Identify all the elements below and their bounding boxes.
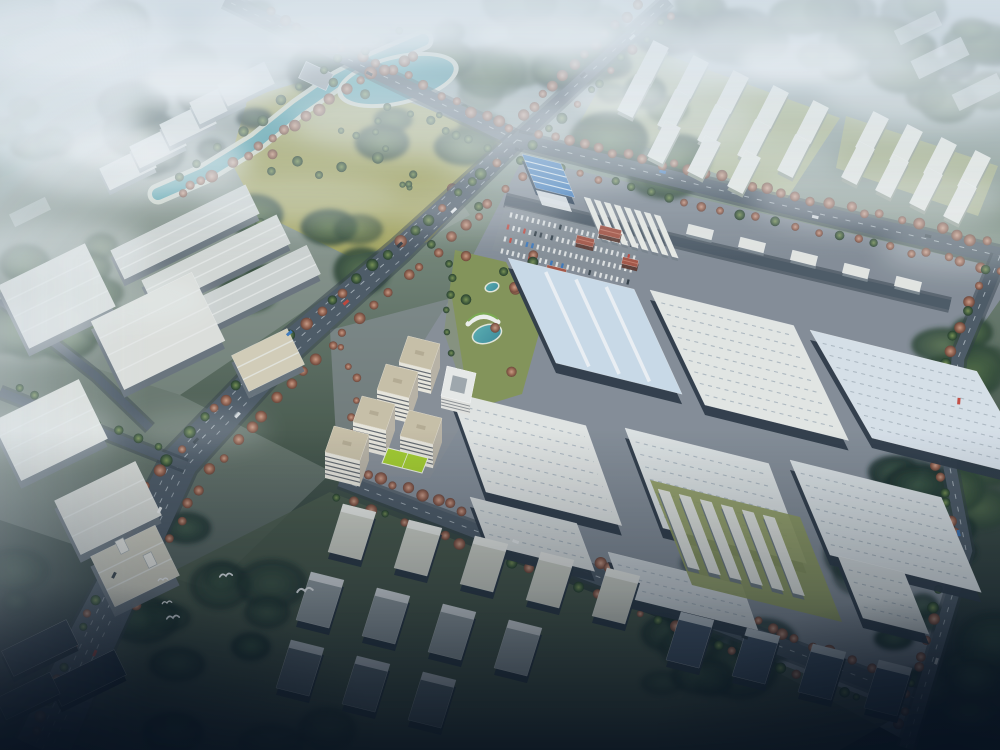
scene-root	[0, 0, 1000, 750]
vignette	[0, 430, 1000, 750]
rendered-scene	[0, 0, 1000, 750]
aerial-masterplan-rendering: Aerial architectural rendering of a larg…	[0, 0, 1000, 750]
